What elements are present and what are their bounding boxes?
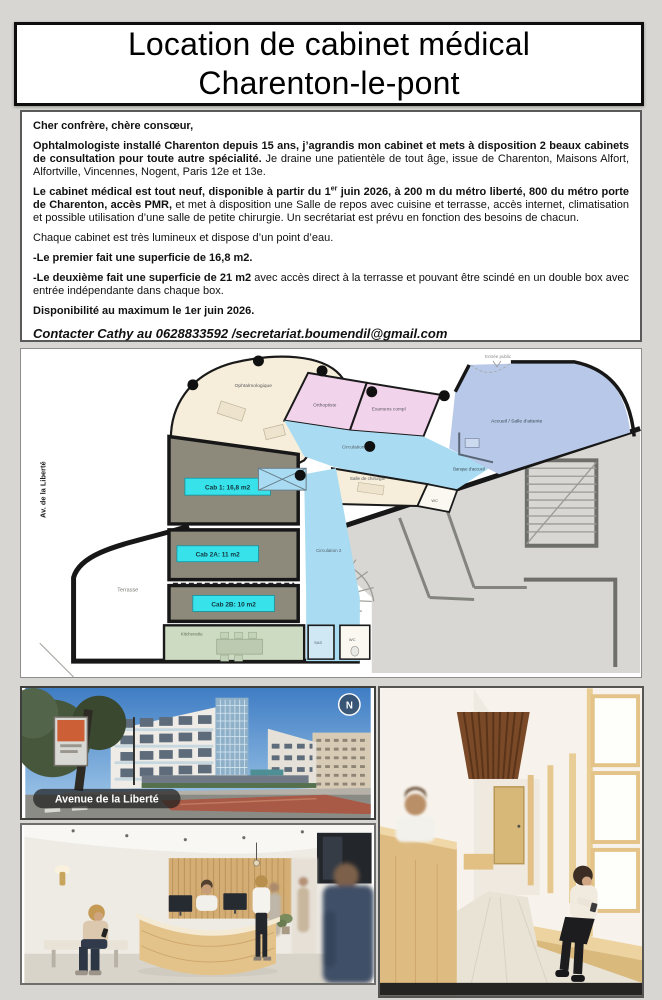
title-box: Location de cabinet médical Charenton-le… bbox=[14, 22, 644, 106]
room-wc-bas: WC bbox=[340, 625, 370, 659]
floorplan-box: Espace intérieur Terrasse Av. de la Libe… bbox=[20, 348, 642, 678]
room-label-wc-haut: WC bbox=[431, 498, 438, 503]
foreground-counter bbox=[380, 826, 457, 995]
wood-slat-ceiling bbox=[457, 712, 530, 779]
room-label-kitchenette: Kitchenette bbox=[181, 631, 203, 636]
room-label-circulation2: Circulation 2 bbox=[316, 548, 342, 553]
svg-text:N: N bbox=[346, 700, 353, 711]
paragraph-cab2: -Le deuxième fait une superficie de 21 m… bbox=[33, 272, 629, 298]
salutation: Cher confrère, chère consœur, bbox=[33, 120, 629, 133]
cabinet-bold-pre: Le cabinet médical est tout neuf, dispon… bbox=[33, 186, 331, 198]
cab2-bold: -Le deuxième fait une superficie de 21 m… bbox=[33, 272, 251, 284]
contact-line: Contacter Cathy au 0628833592 /secretari… bbox=[33, 327, 629, 340]
paragraph-dispo: Disponibilité au maximum le 1er juin 202… bbox=[33, 305, 629, 318]
room-label-accueil: Accueil / Salle d'attente bbox=[491, 419, 543, 425]
room-sas: SAS bbox=[308, 625, 334, 659]
street-name-label: Av. de la Liberté bbox=[39, 461, 48, 518]
photo-bottom-strip bbox=[380, 983, 642, 996]
entrance-label: Entrée public bbox=[485, 354, 512, 359]
compass-icon: N bbox=[339, 694, 360, 715]
room-cab2a: Cab 2A: 11 m2 bbox=[169, 530, 298, 580]
room-label-ophtalmologique: Ophtalmologique bbox=[235, 383, 273, 389]
room-label-banque: Banque d'accueil bbox=[453, 466, 485, 471]
street-view-caption: Avenue de la Liberté bbox=[33, 789, 180, 808]
hedge bbox=[142, 783, 317, 788]
svg-text:Avenue de la Liberté: Avenue de la Liberté bbox=[55, 793, 159, 805]
room-label-examens: Examens compl bbox=[372, 407, 406, 413]
room-label-orthoptiste: Orthoptiste bbox=[313, 403, 337, 409]
room-label-chirurgie: Salle de chirurgie bbox=[350, 476, 386, 481]
paragraph-lumineux: Chaque cabinet est très lumineux et disp… bbox=[33, 232, 629, 245]
room-label-cab2b: Cab 2B: 10 m2 bbox=[211, 601, 256, 608]
reception-photo bbox=[20, 823, 376, 985]
paragraph-cabinet: Le cabinet médical est tout neuf, dispon… bbox=[33, 186, 629, 225]
page-title-line2: Charenton-le-pont bbox=[198, 64, 459, 103]
room-label-terrasse: Terrasse bbox=[117, 588, 138, 594]
floor-plan: Espace intérieur Terrasse Av. de la Libe… bbox=[21, 349, 641, 677]
room-cab2b: Cab 2B: 10 m2 bbox=[169, 584, 298, 622]
room-label-cab1: Cab 1: 16,8 m2 bbox=[205, 485, 251, 492]
street-photo: Avenue de la Liberté N bbox=[20, 686, 376, 820]
room-label-wc-bas: WC bbox=[349, 637, 356, 642]
billboard bbox=[54, 717, 87, 766]
corridor-photo bbox=[378, 686, 644, 998]
page-title-line1: Location de cabinet médical bbox=[128, 25, 530, 64]
distant-building bbox=[312, 733, 370, 791]
paragraph-intro: Ophtalmologiste installé Charenton depui… bbox=[33, 140, 629, 179]
room-label-sas: SAS bbox=[314, 640, 322, 645]
room-label-cab2a: Cab 2A: 11 m2 bbox=[196, 552, 241, 559]
room-kitchenette: Kitchenette bbox=[164, 625, 304, 661]
letter-box: Cher confrère, chère consœur, Ophtalmolo… bbox=[20, 110, 642, 342]
paragraph-cab1: -Le premier fait une superficie de 16,8 … bbox=[33, 252, 629, 265]
